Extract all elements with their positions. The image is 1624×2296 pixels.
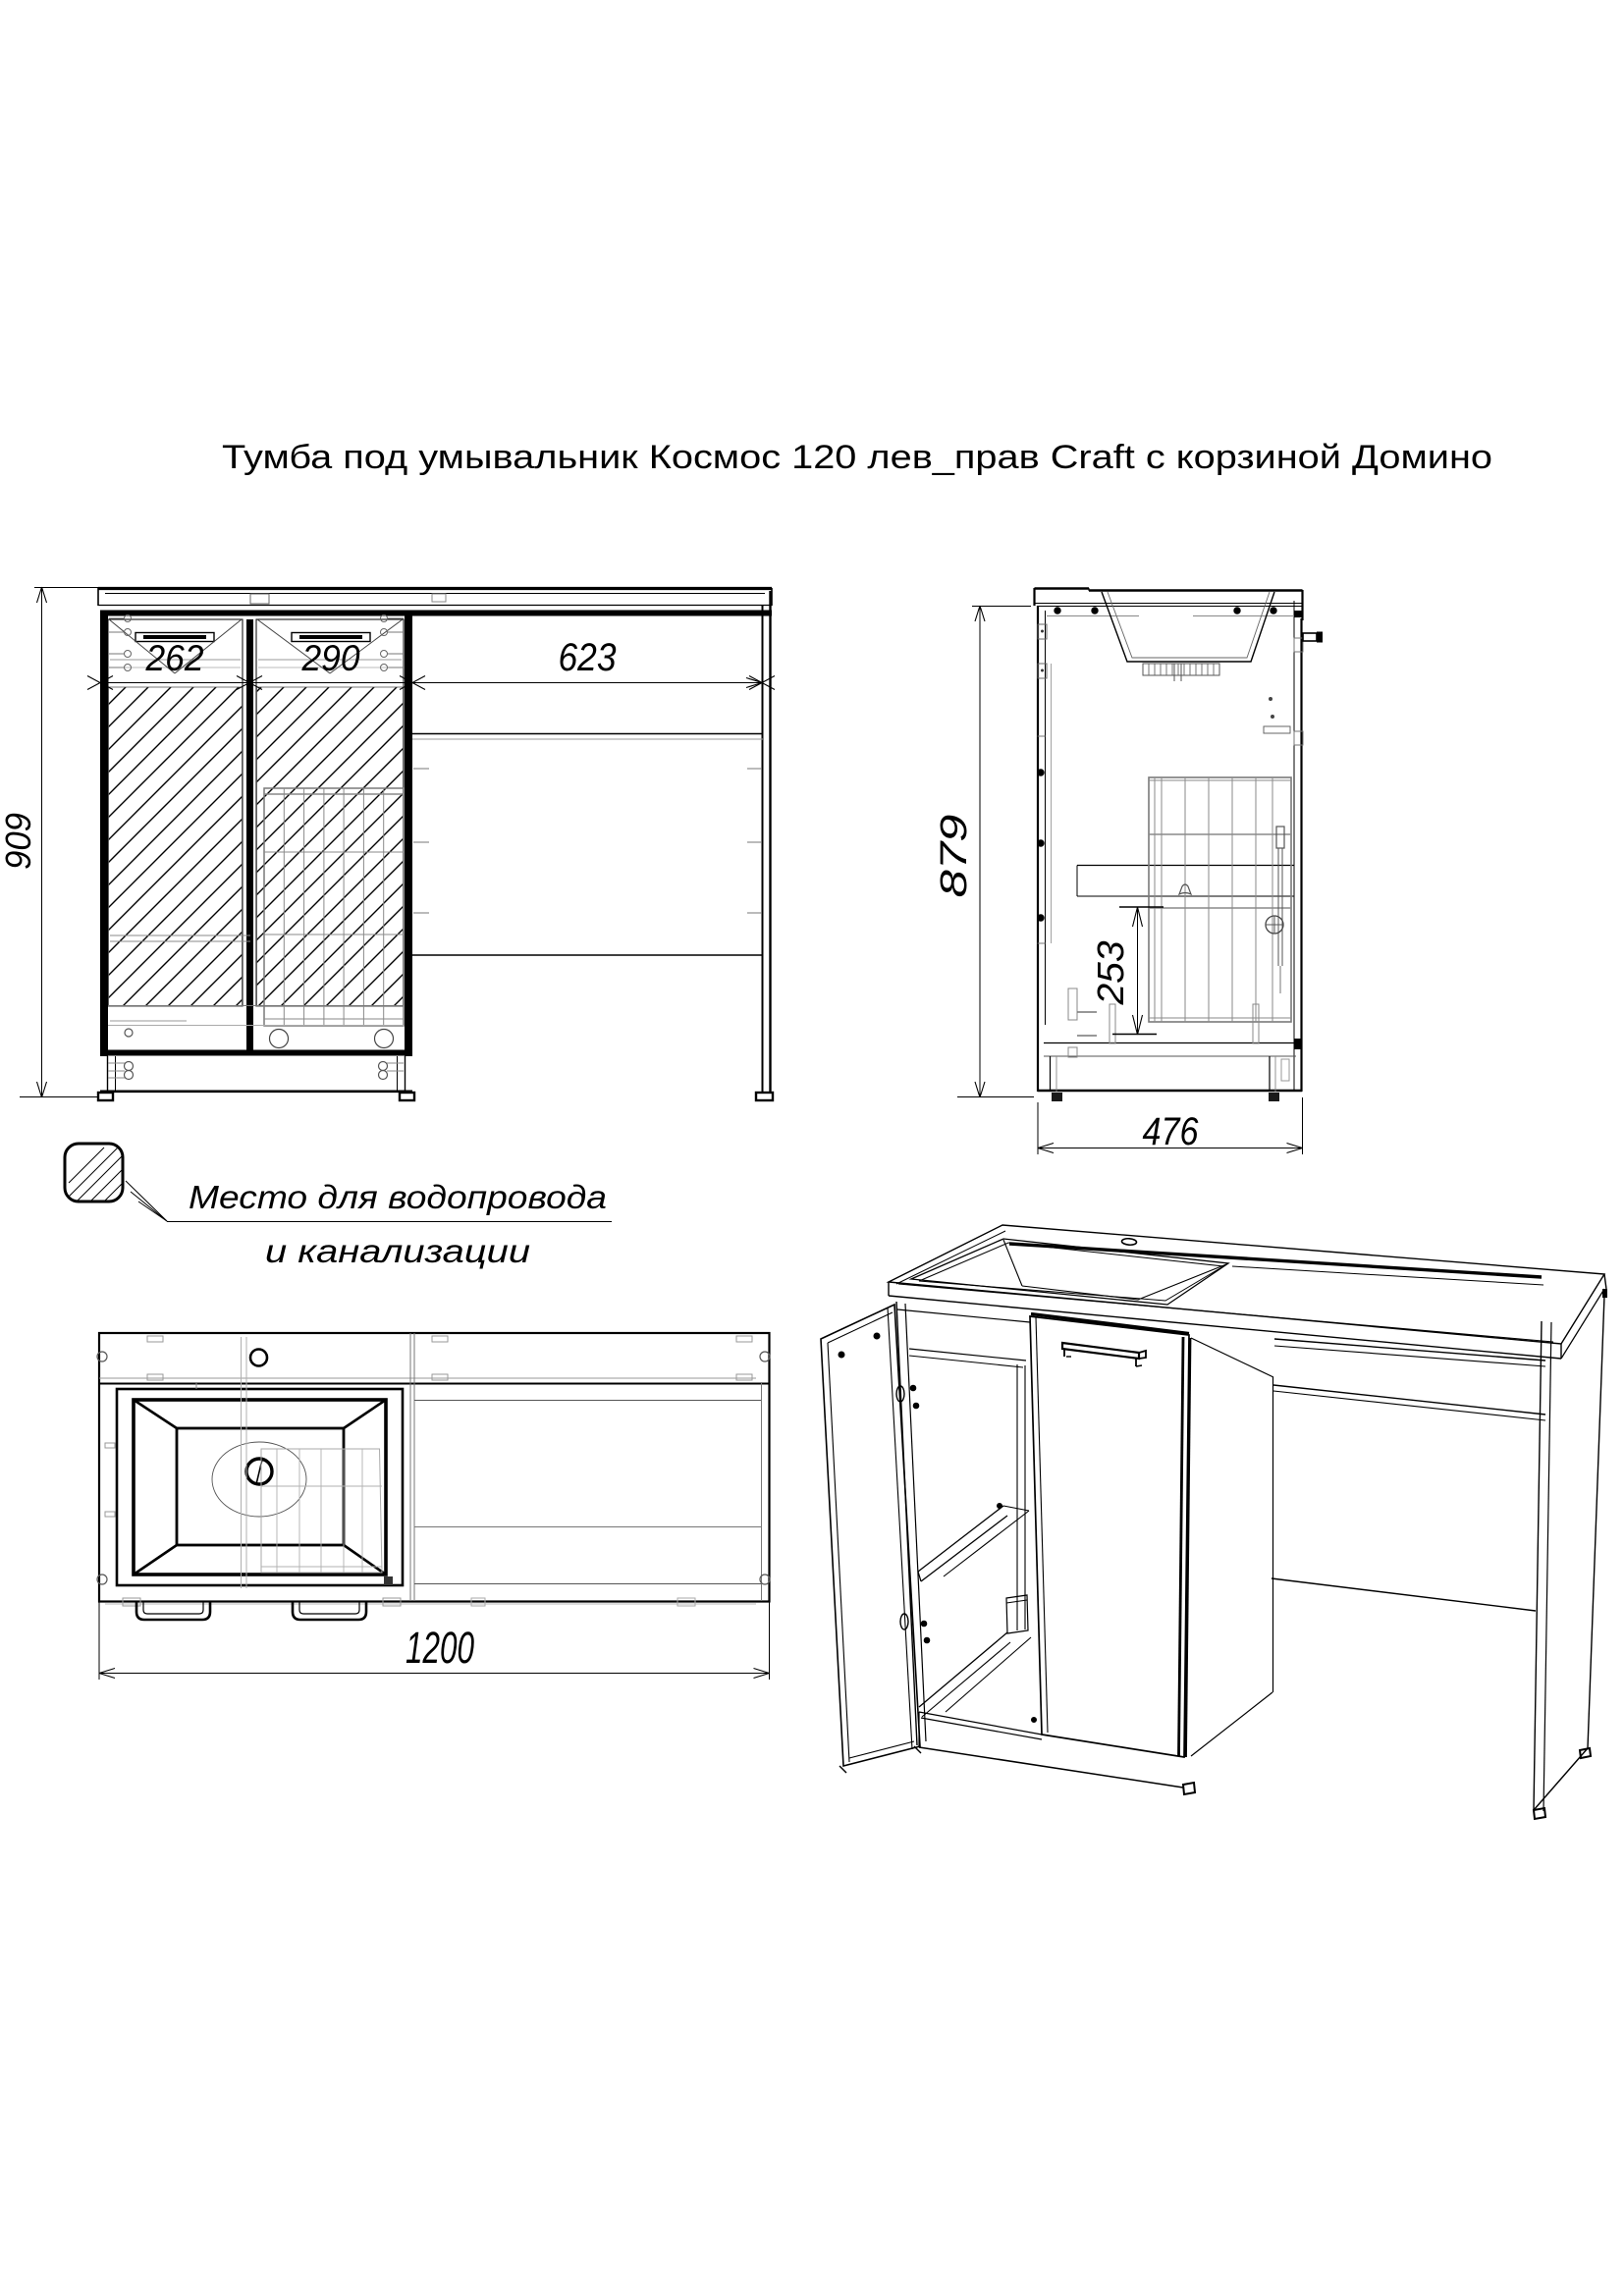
svg-text:476: 476	[1143, 1110, 1200, 1153]
svg-text:и канализации: и канализации	[265, 1233, 530, 1269]
svg-text:1200: 1200	[406, 1623, 474, 1673]
svg-text:290: 290	[301, 638, 360, 678]
svg-text:909: 909	[0, 813, 38, 870]
svg-text:253: 253	[1091, 941, 1132, 1006]
svg-text:Тумба под умывальник Космос 12: Тумба под умывальник Космос 120 лев_прав…	[222, 439, 1492, 476]
svg-text:Место для водопровода: Место для водопровода	[189, 1179, 607, 1215]
svg-text:879: 879	[934, 815, 975, 898]
svg-text:623: 623	[559, 636, 617, 679]
svg-text:262: 262	[145, 638, 204, 678]
